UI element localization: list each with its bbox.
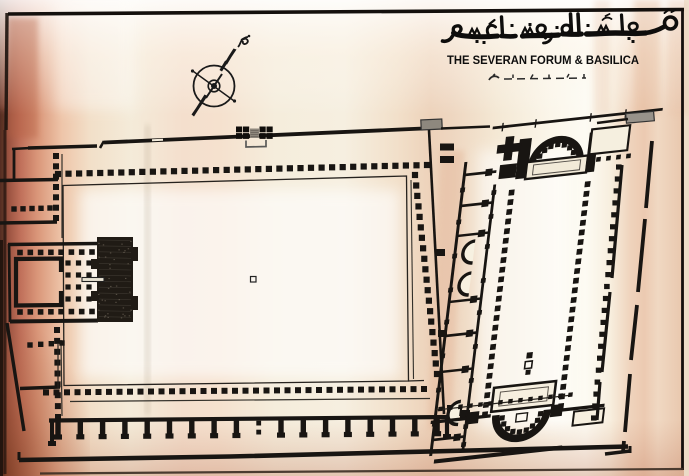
- svg-text:THE SEVERAN FORUM & BASILICA: THE SEVERAN FORUM & BASILICA: [447, 53, 639, 67]
